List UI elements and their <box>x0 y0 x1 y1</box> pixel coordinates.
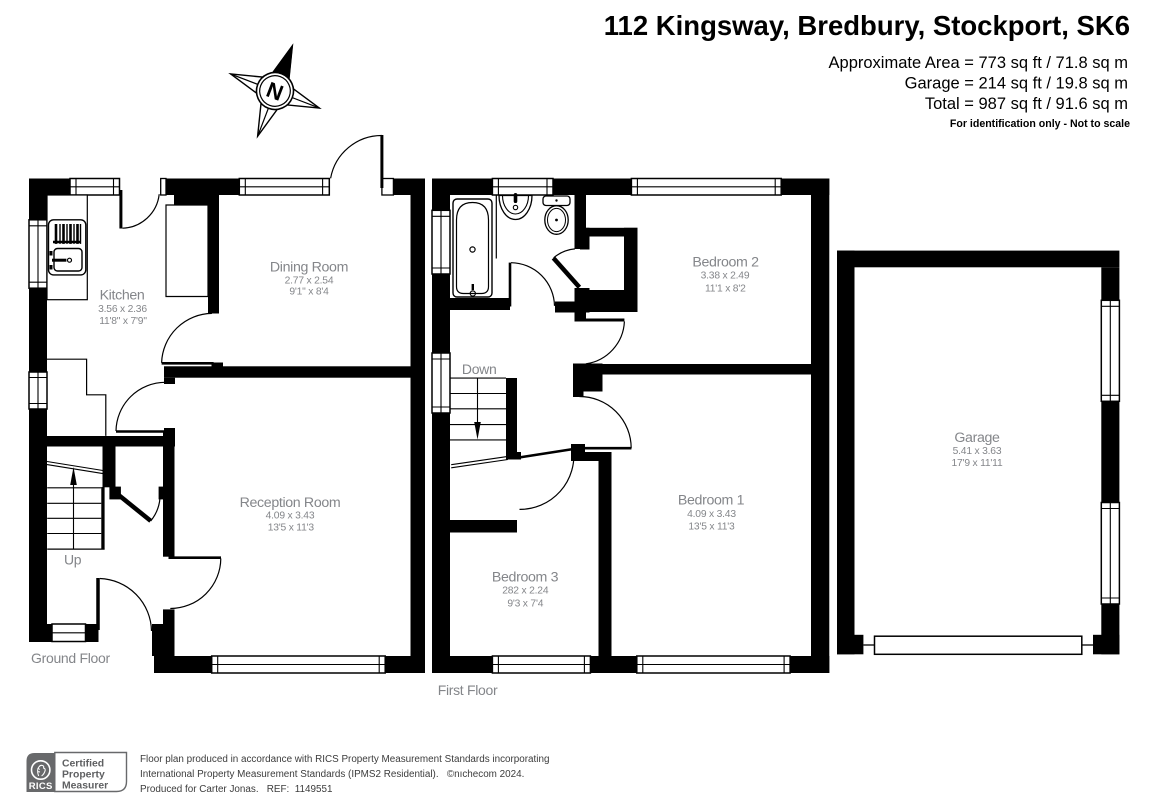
svg-text:2.77 x 2.54: 2.77 x 2.54 <box>285 276 334 287</box>
svg-text:11'8" x 7'9": 11'8" x 7'9" <box>99 316 147 327</box>
svg-text:Bedroom 3: Bedroom 3 <box>492 569 559 585</box>
svg-text:Total = 987 sq ft / 91.6 sq m: Total = 987 sq ft / 91.6 sq m <box>925 95 1128 113</box>
svg-text:Property: Property <box>62 770 105 781</box>
svg-text:9'3 x 7'4: 9'3 x 7'4 <box>507 598 543 609</box>
svg-text:Garage = 214 sq ft / 19.8 sq m: Garage = 214 sq ft / 19.8 sq m <box>905 75 1128 93</box>
svg-text:9'1" x 8'4: 9'1" x 8'4 <box>289 287 329 298</box>
svg-text:Up: Up <box>64 552 82 568</box>
svg-text:11'1 x 8'2: 11'1 x 8'2 <box>705 283 746 294</box>
svg-text:Ground Floor: Ground Floor <box>31 650 111 666</box>
svg-text:5.41 x 3.63: 5.41 x 3.63 <box>953 446 1002 457</box>
svg-text:Floor plan produced in accorda: Floor plan produced in accordance with R… <box>140 754 549 765</box>
svg-text:First Floor: First Floor <box>438 682 498 698</box>
svg-text:3.38 x 2.49: 3.38 x 2.49 <box>701 271 750 282</box>
svg-text:Measurer: Measurer <box>62 781 108 792</box>
svg-text:For identification only - Not: For identification only - Not to scale <box>950 118 1130 130</box>
svg-text:13'5 x 11'3: 13'5 x 11'3 <box>688 521 735 532</box>
svg-text:4.09 x 3.43: 4.09 x 3.43 <box>266 511 315 522</box>
svg-text:Approximate Area = 773 sq ft /: Approximate Area = 773 sq ft / 71.8 sq m <box>829 54 1128 72</box>
svg-text:13'5 x 11'3: 13'5 x 11'3 <box>268 523 315 534</box>
svg-text:3.56 x 2.36: 3.56 x 2.36 <box>98 304 147 315</box>
svg-text:Produced for Carter Jonas. R: Produced for Carter Jonas. REF: 1149551 <box>140 784 333 795</box>
svg-text:Kitchen: Kitchen <box>100 288 145 304</box>
svg-text:Certified: Certified <box>62 759 104 770</box>
svg-text:Garage: Garage <box>954 430 1000 446</box>
svg-text:112 Kingsway, Bredbury, Stockp: 112 Kingsway, Bredbury, Stockport, SK6 <box>604 10 1130 41</box>
svg-text:Reception Room: Reception Room <box>240 495 341 511</box>
svg-text:RICS: RICS <box>29 781 53 792</box>
svg-text:4.09 x 3.43: 4.09 x 3.43 <box>687 509 736 520</box>
svg-text:Dining Room: Dining Room <box>270 260 348 276</box>
svg-text:Bedroom 1: Bedroom 1 <box>678 493 745 509</box>
svg-text:17'9 x 11'11: 17'9 x 11'11 <box>952 458 1003 469</box>
svg-text:282 x 2.24: 282 x 2.24 <box>502 586 549 597</box>
svg-text:Down: Down <box>462 361 497 377</box>
svg-text:Bedroom 2: Bedroom 2 <box>692 255 759 271</box>
svg-text:International Property Measure: International Property Measurement Stand… <box>140 769 524 780</box>
